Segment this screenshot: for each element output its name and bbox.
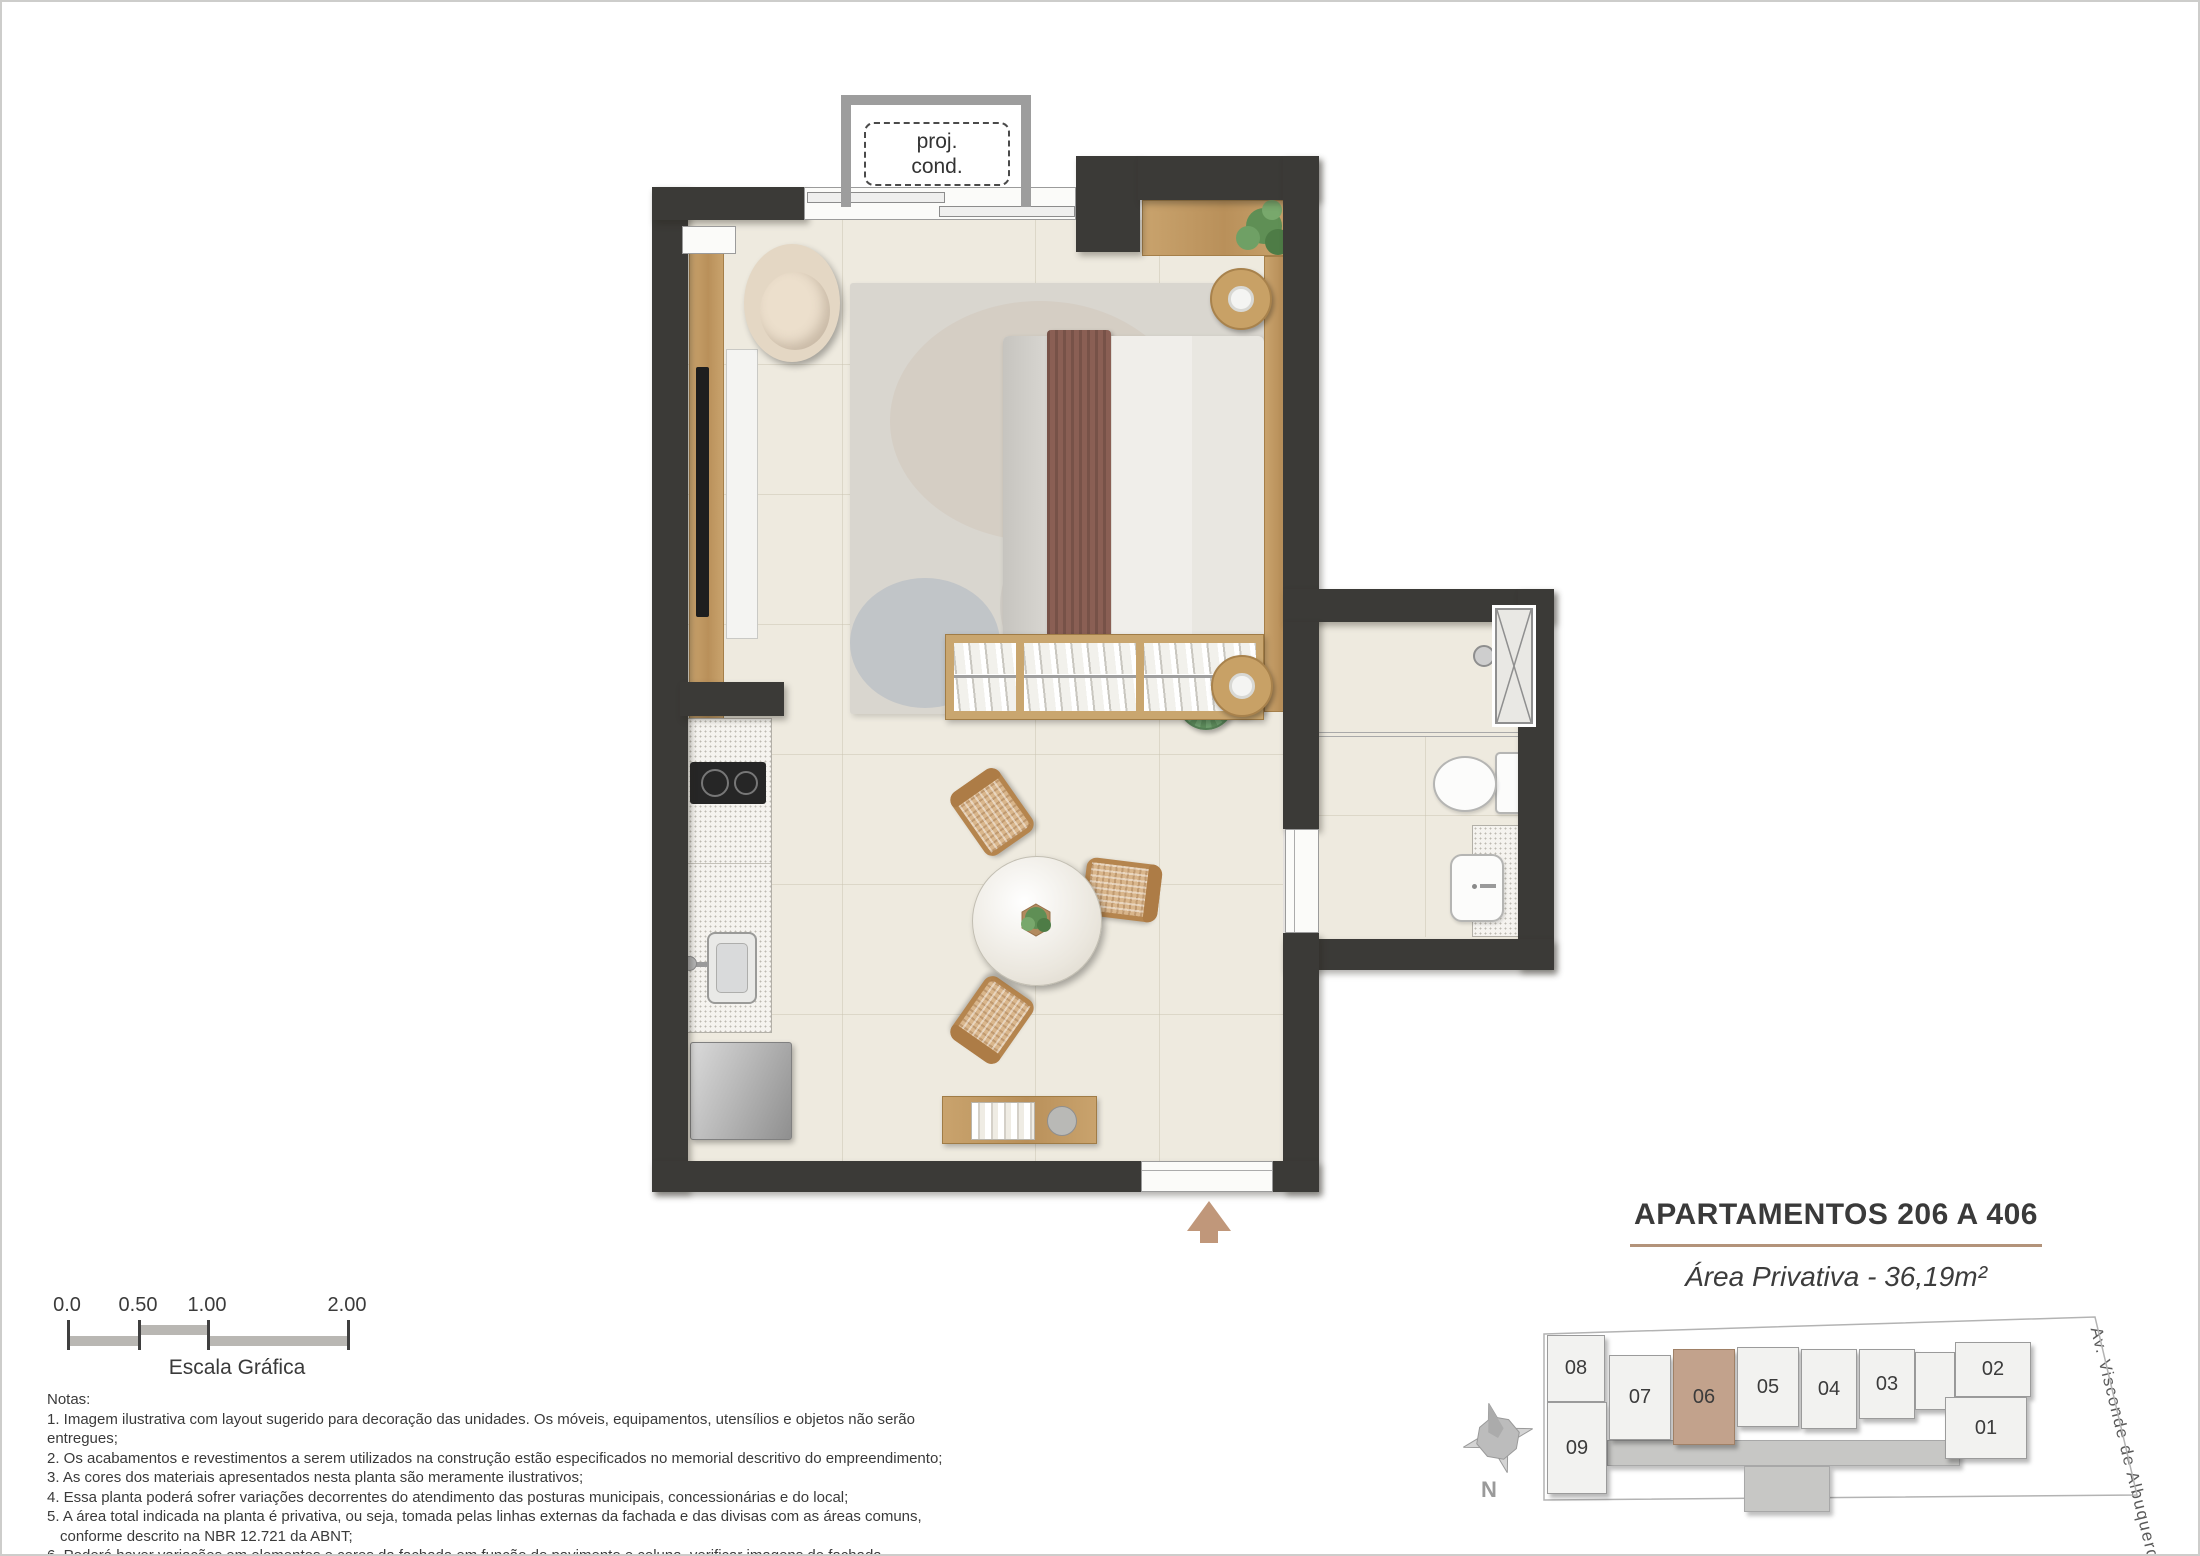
keyplan-unit-01: 01 [1945, 1397, 2027, 1459]
keyplan-unit-02: 02 [1955, 1342, 2031, 1397]
scale-bar: 0.0 0.50 1.00 2.00 Escala Gráfica [47, 1294, 377, 1386]
tv-icon [696, 367, 709, 617]
plan-sheet: proj. cond. 0.0 0.50 1.00 2.00 Escala Gr… [0, 0, 2200, 1556]
armchair [744, 244, 840, 362]
wall [1283, 933, 1319, 1192]
wall-niche [682, 226, 736, 254]
wardrobe-section [1024, 643, 1136, 711]
corridor-stem [1744, 1466, 1830, 1512]
title-block: APARTAMENTOS 206 A 406 Área Privativa - … [1630, 1198, 2042, 1293]
side-table [1211, 655, 1273, 717]
keyplan-unit-08: 08 [1547, 1335, 1605, 1402]
books [971, 1102, 1035, 1140]
scale-label: 0.50 [119, 1294, 158, 1317]
tile-line [842, 220, 843, 1161]
bed-sheet-gray [1003, 336, 1047, 644]
bench [942, 1096, 1097, 1144]
tile-line [1319, 815, 1518, 816]
sink-faucet-icon [1480, 884, 1496, 888]
keyplan-unit-09: 09 [1547, 1402, 1607, 1494]
door-line [1142, 1170, 1272, 1171]
wardrobe-rail [1024, 674, 1136, 678]
wall [1283, 622, 1319, 829]
key-plan: 08 09 07 06 05 04 03 02 01 N Av. Viscond… [1457, 1307, 2197, 1556]
keyplan-unit-04: 04 [1801, 1349, 1857, 1429]
tile-line [1425, 736, 1426, 937]
wall [1283, 156, 1319, 622]
private-area-label: Área Privativa - 36,19m² [1630, 1261, 2042, 1293]
tile-line [688, 754, 1283, 755]
bathroom-door [1285, 829, 1319, 933]
bathroom-sink [1450, 854, 1504, 922]
note-line: 4. Essa planta poderá sofrer variações d… [47, 1488, 987, 1508]
scale-tick [347, 1320, 350, 1350]
balcony-wall [841, 95, 1031, 105]
proj-cond-label: proj. cond. [864, 122, 1010, 186]
counter-seam [688, 863, 771, 864]
toilet-bowl [1433, 756, 1497, 812]
note-line: 5. A área total indicada na planta é pri… [47, 1507, 987, 1527]
side-table-tray [1228, 286, 1254, 312]
kitchen-sink [707, 932, 757, 1004]
wardrobe-rail [954, 674, 1016, 678]
kitchen-partition-wall [680, 682, 784, 716]
keyplan-unit-07: 07 [1609, 1355, 1671, 1440]
ventilation-shaft [1495, 608, 1533, 724]
door-line [1294, 830, 1295, 932]
wall [1076, 156, 1140, 252]
page-title: APARTAMENTOS 206 A 406 [1630, 1198, 2042, 1232]
title-rule [1630, 1244, 2042, 1247]
keyplan-unit-03: 03 [1859, 1349, 1915, 1419]
note-line: 6. Poderá haver variações em elementos e… [47, 1546, 987, 1556]
proj-cond-line2: cond. [866, 154, 1008, 179]
scale-caption: Escala Gráfica [127, 1356, 347, 1380]
entry-arrow-stem [1200, 1231, 1218, 1243]
balcony-wall [841, 95, 851, 207]
note-line: 3. As cores dos materiais apresentados n… [47, 1468, 987, 1488]
scale-segment [141, 1325, 207, 1335]
window-pane [939, 206, 1075, 217]
entry-door [1141, 1161, 1273, 1192]
cooktop [690, 762, 766, 804]
floor-plan: proj. cond. [652, 90, 1612, 1260]
corridor [1607, 1440, 1960, 1466]
scale-label: 0.0 [53, 1294, 81, 1317]
note-line: 1. Imagem ilustrativa com layout sugerid… [47, 1410, 987, 1449]
notes-heading: Notas: [47, 1390, 987, 1410]
bed-duvet [1111, 336, 1192, 644]
note-line: 2. Os acabamentos e revestimentos a sere… [47, 1449, 987, 1469]
bench-decor [1047, 1106, 1077, 1136]
keyplan-unit-05: 05 [1737, 1347, 1799, 1427]
balcony-wall [1021, 95, 1031, 207]
scale-label: 2.00 [328, 1294, 367, 1317]
notes-block: Notas: 1. Imagem ilustrativa com layout … [47, 1390, 987, 1556]
scale-segment [70, 1336, 138, 1346]
burner [701, 769, 729, 797]
shower-glass [1319, 732, 1519, 737]
entry-arrow-icon [1187, 1201, 1231, 1231]
note-line-continuation: conforme descrito na NBR 12.721 da ABNT; [47, 1527, 987, 1547]
keyplan-unit-06-highlighted: 06 [1673, 1349, 1735, 1445]
table-plant-icon [1008, 892, 1064, 948]
wall [652, 187, 806, 220]
burner [734, 771, 758, 795]
wall [1283, 939, 1554, 970]
window-pane [807, 192, 945, 203]
scale-label: 1.00 [188, 1294, 227, 1317]
sink-basin [716, 943, 748, 993]
tv-shelf [726, 349, 758, 639]
sink-drain [1472, 884, 1477, 889]
armchair-seat [760, 272, 830, 350]
bed-runner-brown [1047, 330, 1111, 650]
refrigerator [690, 1042, 792, 1140]
wardrobe-section [954, 643, 1016, 711]
side-table [1210, 268, 1272, 330]
proj-cond-line1: proj. [866, 129, 1008, 154]
scale-segment [210, 1336, 347, 1346]
side-table-tray [1229, 673, 1255, 699]
